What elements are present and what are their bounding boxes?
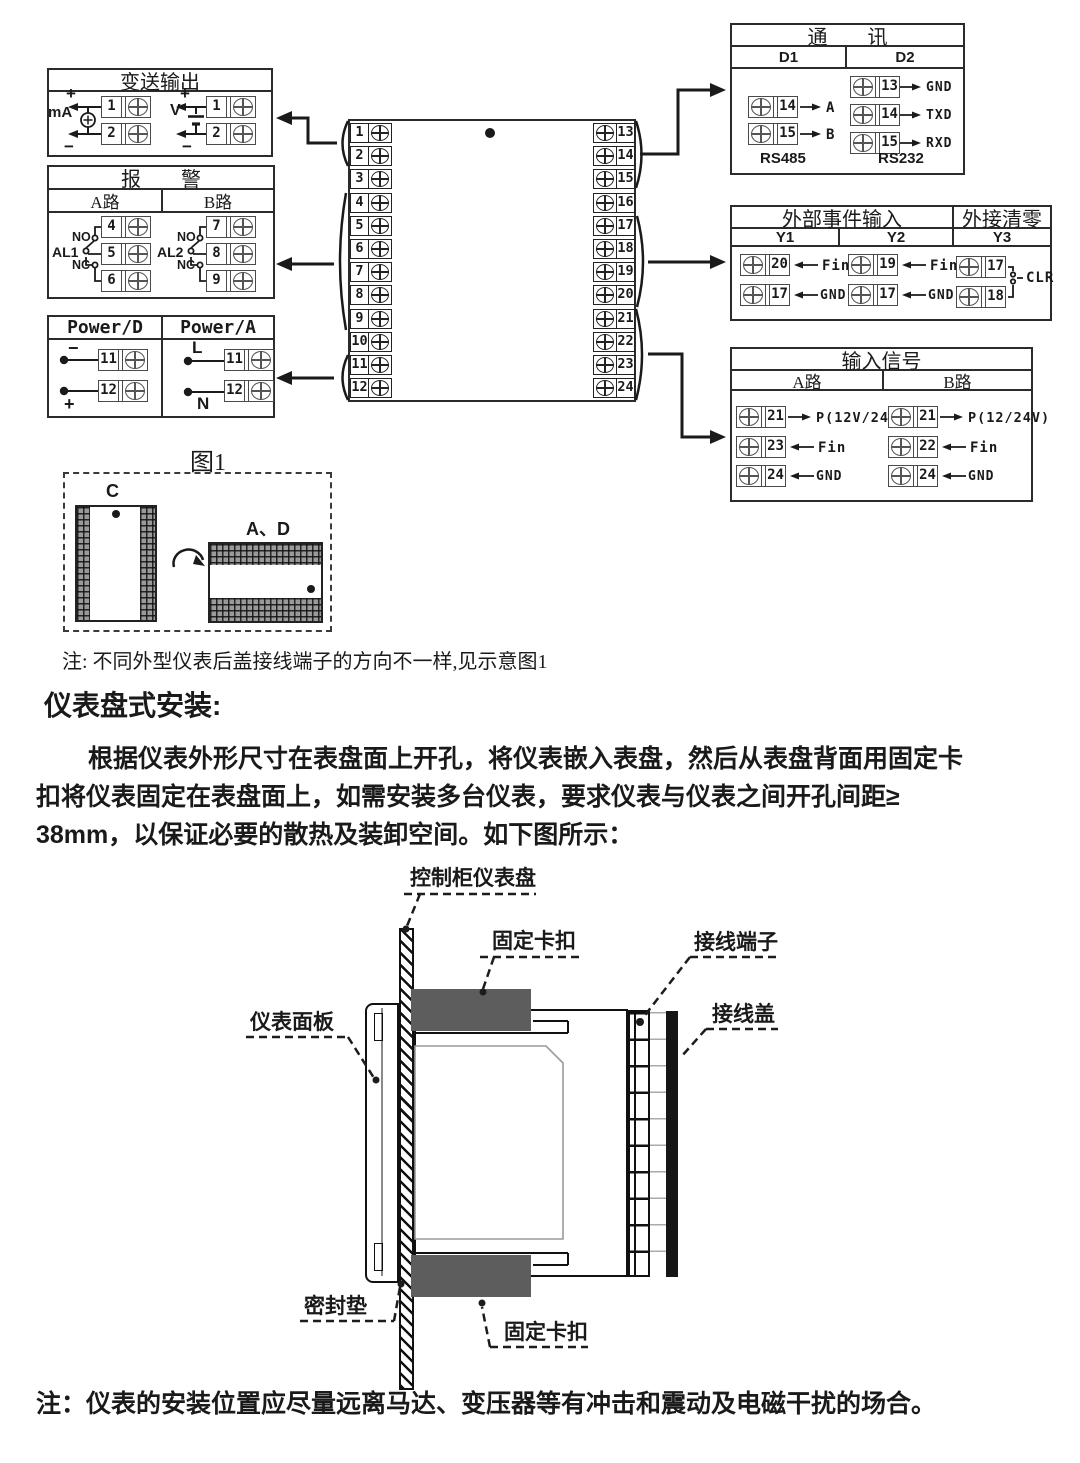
screw-terminal-icon	[249, 350, 273, 370]
terminal: 19	[848, 254, 898, 276]
terminal: 7	[206, 216, 256, 238]
terminal: 15	[748, 123, 798, 145]
cover-label: 接线盖	[712, 998, 775, 1028]
screw-terminal-icon	[369, 240, 391, 258]
fixing-clip-top	[411, 989, 531, 1031]
screw-terminal-icon	[851, 77, 875, 97]
screw-terminal-icon	[369, 170, 391, 188]
screw-terminal-icon	[594, 147, 616, 165]
screw-terminal-icon	[594, 310, 616, 328]
terminal: 2	[350, 146, 392, 166]
terminal-label: 接线端子	[694, 926, 778, 956]
terminal: 23	[593, 355, 635, 375]
terminal: 17	[848, 284, 898, 306]
screw-terminal-icon	[594, 286, 616, 304]
terminal: 2	[101, 123, 151, 145]
terminal: 4	[101, 216, 151, 238]
screw-terminal-icon	[249, 381, 273, 401]
screw-terminal-icon	[123, 350, 147, 370]
screw-terminal-icon	[749, 124, 773, 144]
screw-terminal-icon	[369, 379, 391, 397]
terminal: 18	[956, 286, 1006, 308]
screw-terminal-icon	[126, 124, 150, 144]
screw-terminal-icon	[369, 286, 391, 304]
d1-header: D1	[732, 47, 845, 67]
ma-label: mA	[48, 104, 72, 121]
channel-a-header: A路	[732, 371, 882, 389]
box-title: 变送输出	[49, 70, 271, 90]
screw-terminal-icon	[126, 217, 150, 237]
y2-header: Y2	[838, 229, 952, 245]
channel-a-header: A路	[49, 190, 161, 211]
manual-page: 变送输出 mA + − 1 2 V + − 1 2 报 警 A路 B路 AL1 …	[0, 0, 1080, 1463]
neutral-label: N	[197, 394, 209, 414]
minus-sign: −	[68, 338, 79, 359]
terminal: 6	[101, 270, 151, 292]
front-bezel	[365, 1003, 399, 1283]
line-label: L	[192, 338, 202, 358]
terminal: 24	[736, 465, 786, 487]
terminal: 24	[888, 465, 938, 487]
screw-terminal-icon	[849, 285, 873, 305]
rs485-a-label: A	[826, 100, 835, 116]
screw-terminal-icon	[126, 271, 150, 291]
txd-label: TXD	[926, 108, 952, 123]
minus-sign: −	[64, 137, 74, 157]
channel-b-header: B路	[161, 190, 273, 211]
screw-terminal-icon	[889, 437, 913, 457]
note-installation: 注：仪表的安装位置应尽量远离马达、变压器等有冲击和震动及电磁干扰的场合。	[36, 1384, 936, 1420]
fin-label: Fin	[818, 440, 846, 456]
terminal: 12	[350, 378, 392, 398]
screw-terminal-icon	[851, 105, 875, 125]
gnd-label: GND	[926, 80, 952, 95]
screw-terminal-icon	[741, 285, 765, 305]
screw-terminal-icon	[369, 194, 391, 212]
clear-title: 外接清零	[952, 207, 1050, 227]
terminal: 7	[350, 262, 392, 282]
terminal: 19	[593, 262, 635, 282]
terminal: 5	[350, 216, 392, 236]
terminal: 2	[206, 123, 256, 145]
terminal: 11	[224, 349, 274, 371]
section-heading: 仪表盘式安装:	[44, 684, 221, 724]
terminal: 13	[850, 76, 900, 98]
terminal: 14	[850, 104, 900, 126]
terminal-cover	[666, 1011, 678, 1277]
screw-terminal-icon	[594, 217, 616, 235]
terminal: 14	[748, 96, 798, 118]
d2-header: D2	[845, 47, 963, 67]
no-label: NO	[177, 230, 196, 244]
y1-header: Y1	[732, 229, 838, 245]
nc-label: NC	[177, 258, 195, 272]
fin-label: Fin	[930, 258, 958, 274]
terminal: 11	[350, 355, 392, 375]
terminal: 21	[593, 309, 635, 329]
terminal: 20	[593, 285, 635, 305]
screw-terminal-icon	[594, 124, 616, 142]
terminal: 5	[101, 243, 151, 265]
screw-terminal-icon	[231, 271, 255, 291]
terminal: 3	[350, 169, 392, 189]
terminal: 9	[206, 270, 256, 292]
terminal: 14	[593, 146, 635, 166]
channel-b-header: B路	[882, 371, 1031, 389]
terminal: 23	[736, 436, 786, 458]
power-out-label: P(12/24V)	[968, 410, 1050, 426]
screw-terminal-icon	[369, 124, 391, 142]
screw-terminal-icon	[126, 97, 150, 117]
screw-terminal-icon	[369, 356, 391, 374]
y3-header: Y3	[952, 229, 1050, 245]
clip-bottom-label: 固定卡扣	[504, 1316, 588, 1346]
screw-terminal-icon	[594, 194, 616, 212]
screw-terminal-icon	[231, 124, 255, 144]
screw-terminal-icon	[851, 133, 875, 153]
panel-label: 控制柜仪表盘	[410, 862, 536, 892]
terminal-rail-lines	[650, 1012, 666, 1275]
terminal: 16	[593, 193, 635, 213]
screw-terminal-icon	[594, 356, 616, 374]
screw-terminal-icon	[889, 466, 913, 486]
screw-terminal-icon	[737, 437, 761, 457]
clr-label: CLR	[1026, 270, 1054, 286]
screw-terminal-icon	[369, 147, 391, 165]
terminal: 10	[350, 332, 392, 352]
screw-terminal-icon	[594, 379, 616, 397]
gnd-label: GND	[968, 469, 994, 484]
fin-label: Fin	[970, 440, 998, 456]
gnd-label: GND	[928, 288, 954, 303]
screw-terminal-icon	[369, 310, 391, 328]
terminal: 4	[350, 193, 392, 213]
fixing-clip-bottom	[411, 1255, 531, 1297]
gasket-label: 密封垫	[304, 1290, 367, 1320]
terminal: 21	[888, 406, 938, 428]
screw-terminal-icon	[957, 257, 981, 277]
form-ad-label: A、D	[246, 515, 290, 541]
screw-terminal-icon	[749, 97, 773, 117]
screw-terminal-icon	[889, 407, 913, 427]
terminal-strip	[628, 1010, 650, 1277]
box-title: 报 警	[49, 167, 273, 188]
screw-terminal-icon	[594, 240, 616, 258]
screw-terminal-icon	[849, 255, 873, 275]
terminal: 1	[101, 96, 151, 118]
terminal: 12	[98, 380, 148, 402]
minus-sign: −	[182, 137, 192, 157]
terminal: 22	[888, 436, 938, 458]
screw-terminal-icon	[369, 263, 391, 281]
plus-sign: +	[64, 394, 75, 415]
screw-terminal-icon	[231, 97, 255, 117]
paragraph-line: 根据仪表外形尺寸在表盘面上开孔，将仪表嵌入表盘，然后从表盘背面用固定卡	[36, 740, 1066, 778]
terminal: 9	[350, 309, 392, 329]
terminal: 8	[350, 285, 392, 305]
terminal: 17	[956, 256, 1006, 278]
terminal: 13	[593, 123, 635, 143]
rs232-label: RS232	[878, 150, 924, 167]
no-label: NO	[72, 230, 91, 244]
terminal-column-left: 123456789101112	[350, 123, 392, 398]
terminal-strip	[140, 507, 155, 620]
screw-terminal-icon	[231, 217, 255, 237]
paragraph-line: 扣将仪表固定在表盘面上，如需安装多台仪表，要求仪表与仪表之间开孔间距≥	[36, 778, 1066, 816]
screw-terminal-icon	[231, 244, 255, 264]
power-a-header: Power/A	[161, 317, 273, 338]
gnd-label: GND	[820, 288, 846, 303]
power-d-header: Power/D	[49, 317, 161, 338]
box-title: 输入信号	[732, 349, 1031, 369]
terminal-strip	[210, 544, 321, 565]
terminal: 18	[593, 239, 635, 259]
terminal: 15	[593, 169, 635, 189]
note-figure1: 注: 不同外型仪表后盖接线端子的方向不一样,见示意图1	[62, 645, 548, 674]
screw-terminal-icon	[594, 170, 616, 188]
installation-paragraph: 根据仪表外形尺寸在表盘面上开孔，将仪表嵌入表盘，然后从表盘背面用固定卡 扣将仪表…	[36, 740, 1066, 854]
terminal-column-right: 131415161718192021222324	[593, 123, 635, 398]
terminal-strip	[210, 598, 321, 621]
terminal: 22	[593, 332, 635, 352]
terminal: 8	[206, 243, 256, 265]
terminal: 12	[224, 380, 274, 402]
box-title: 外部事件输入	[732, 207, 952, 227]
meter-body	[414, 1009, 628, 1277]
form-c-label: C	[106, 481, 119, 502]
rs485-b-label: B	[826, 127, 835, 143]
rxd-label: RXD	[926, 136, 952, 151]
rs485-label: RS485	[760, 150, 806, 167]
terminal-strip	[77, 507, 90, 620]
terminal: 11	[98, 349, 148, 371]
terminal: 1	[206, 96, 256, 118]
paragraph-line: 38mm，以保证必要的散热及装卸空间。如下图所示：	[36, 816, 1066, 854]
terminal: 20	[740, 254, 790, 276]
gnd-label: GND	[816, 469, 842, 484]
screw-terminal-icon	[123, 381, 147, 401]
screw-terminal-icon	[369, 333, 391, 351]
front-panel-label: 仪表面板	[250, 1006, 334, 1036]
screw-terminal-icon	[126, 244, 150, 264]
fin-label: Fin	[822, 258, 850, 274]
screw-terminal-icon	[737, 407, 761, 427]
terminal: 24	[593, 378, 635, 398]
screw-terminal-icon	[957, 287, 981, 307]
screw-terminal-icon	[594, 333, 616, 351]
screw-terminal-icon	[369, 217, 391, 235]
plus-sign: +	[66, 84, 76, 104]
screw-terminal-icon	[737, 466, 761, 486]
screw-terminal-icon	[594, 263, 616, 281]
clip-top-label: 固定卡扣	[492, 925, 576, 955]
terminal: 17	[593, 216, 635, 236]
terminal: 21	[736, 406, 786, 428]
v-label: V	[170, 102, 181, 120]
plus-sign: +	[180, 84, 190, 104]
screw-terminal-icon	[741, 255, 765, 275]
terminal: 17	[740, 284, 790, 306]
terminal: 1	[350, 123, 392, 143]
terminal: 6	[350, 239, 392, 259]
nc-label: NC	[72, 258, 90, 272]
box-title: 通 讯	[732, 25, 963, 45]
